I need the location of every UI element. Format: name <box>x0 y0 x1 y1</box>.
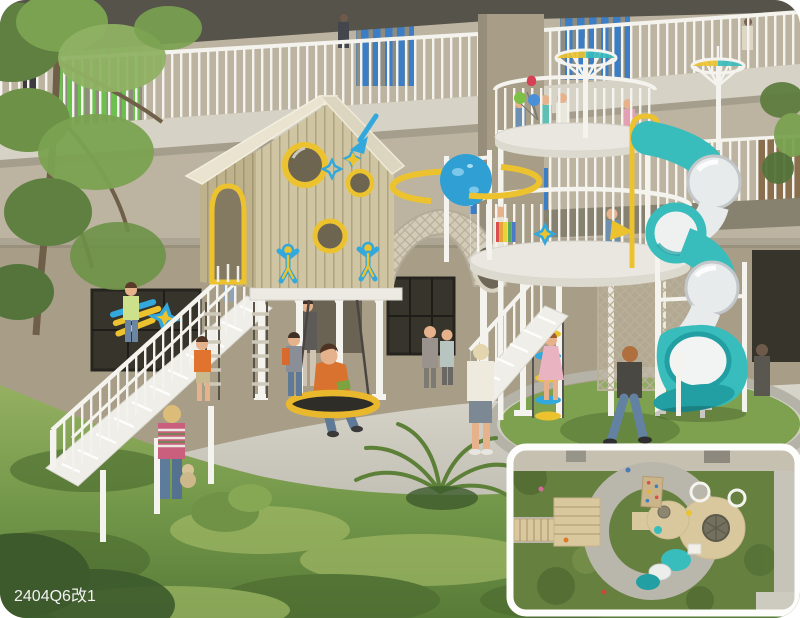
site-plan-inset <box>507 444 800 616</box>
blue-balloon <box>528 94 540 106</box>
round-window-mid <box>315 221 345 251</box>
scene-canvas: 2404Q6改1 <box>0 0 800 618</box>
rendering-page: 2404Q6改1 <box>0 0 800 618</box>
playground-scene: 2404Q6改1 <box>0 0 800 618</box>
plan-square-deck <box>554 498 600 546</box>
plan-person-dot <box>564 538 569 543</box>
green-balloon <box>514 92 526 104</box>
plan-climbing-wall <box>641 476 663 507</box>
plan-person-dot <box>602 590 607 595</box>
plan-right-walk <box>774 471 798 613</box>
plan-person-dot <box>539 487 544 492</box>
person-behind-slide <box>754 344 770 396</box>
swing-saucer <box>289 393 377 415</box>
round-window-large <box>285 145 325 185</box>
plan-person-dot <box>626 468 631 473</box>
house-platform <box>250 288 402 300</box>
heart-balloon <box>527 76 537 87</box>
rainbow-strip-decal <box>496 222 516 242</box>
watermark-text: 2404Q6改1 <box>14 587 96 605</box>
backpack <box>282 348 290 365</box>
round-window-small <box>348 171 372 195</box>
child-on-stairs-1 <box>123 282 139 342</box>
